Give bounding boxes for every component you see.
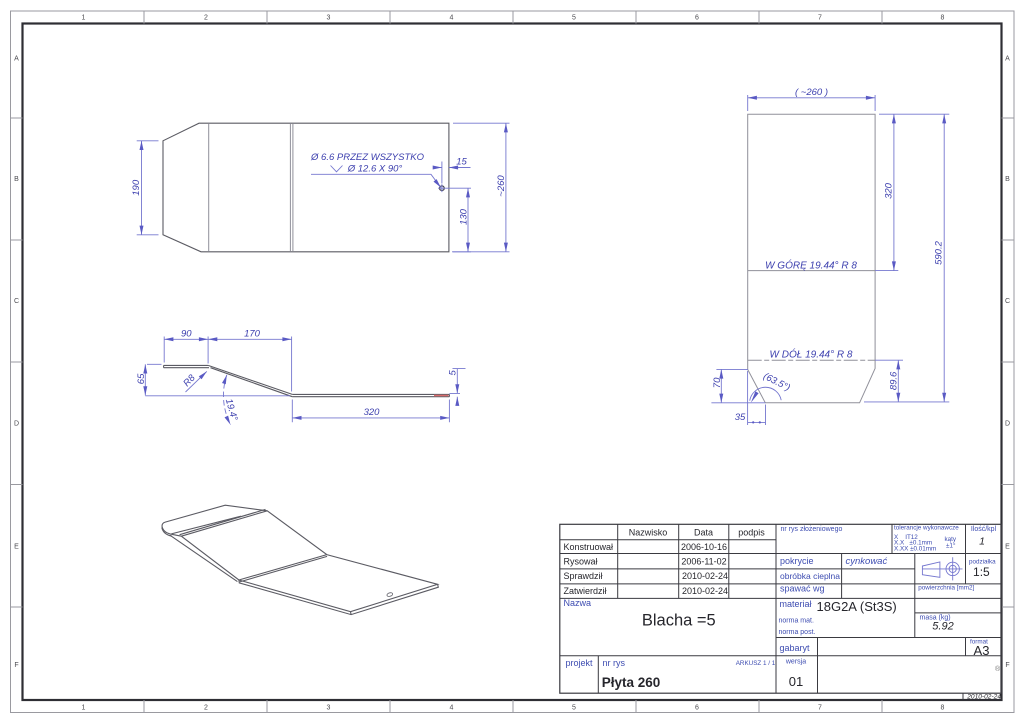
svg-text:nr rys: nr rys bbox=[603, 658, 626, 668]
svg-text:tolerancje wykonawcze: tolerancje wykonawcze bbox=[894, 524, 959, 531]
svg-text:C: C bbox=[1005, 298, 1010, 305]
svg-text:C: C bbox=[14, 298, 19, 305]
svg-text:1: 1 bbox=[82, 705, 86, 712]
svg-text:Blacha =5: Blacha =5 bbox=[642, 612, 716, 630]
svg-text:2: 2 bbox=[204, 15, 208, 22]
svg-text:90: 90 bbox=[181, 329, 192, 340]
svg-text:3: 3 bbox=[327, 15, 331, 22]
svg-text:Ilość/kpl: Ilość/kpl bbox=[971, 526, 997, 533]
svg-text:7: 7 bbox=[818, 705, 822, 712]
svg-text:Płyta 260: Płyta 260 bbox=[602, 675, 661, 690]
svg-text:1:5: 1:5 bbox=[973, 565, 990, 579]
svg-text:2006-11-02: 2006-11-02 bbox=[681, 557, 726, 567]
svg-text:15: 15 bbox=[456, 157, 467, 168]
svg-text:( ~260 ): ( ~260 ) bbox=[795, 87, 828, 98]
svg-text:B: B bbox=[14, 176, 19, 183]
svg-text:powierzchnia [mm2]: powierzchnia [mm2] bbox=[918, 584, 974, 591]
svg-text:spawać wg: spawać wg bbox=[780, 583, 825, 593]
svg-text:Konstruował: Konstruował bbox=[564, 542, 614, 552]
svg-text:wersja: wersja bbox=[785, 659, 806, 666]
svg-text:190: 190 bbox=[131, 179, 142, 196]
svg-text:Zatwierdził: Zatwierdził bbox=[564, 586, 607, 596]
svg-text:Nazwa: Nazwa bbox=[564, 598, 592, 608]
svg-text:A: A bbox=[14, 56, 19, 63]
svg-text:8: 8 bbox=[941, 15, 945, 22]
svg-text:A: A bbox=[1005, 56, 1010, 63]
svg-text:89.6: 89.6 bbox=[889, 371, 900, 390]
svg-text:320: 320 bbox=[364, 407, 381, 418]
svg-text:3: 3 bbox=[327, 705, 331, 712]
svg-text:Nazwisko: Nazwisko bbox=[629, 527, 668, 537]
svg-text:590.2: 590.2 bbox=[933, 240, 944, 264]
svg-text:5: 5 bbox=[572, 705, 576, 712]
svg-text:1: 1 bbox=[82, 15, 86, 22]
svg-text:E: E bbox=[1005, 544, 1010, 551]
svg-text:nr rys złożeniowego: nr rys złożeniowego bbox=[781, 526, 843, 533]
svg-text:®: ® bbox=[995, 665, 1001, 673]
svg-text:320: 320 bbox=[884, 182, 895, 199]
svg-text:W DÓŁ 19.44° R 8: W DÓŁ 19.44° R 8 bbox=[770, 348, 853, 361]
svg-text:Data: Data bbox=[694, 527, 713, 537]
svg-text:~260: ~260 bbox=[496, 175, 507, 197]
svg-text:ARKUSZ 1 / 1: ARKUSZ 1 / 1 bbox=[736, 660, 776, 667]
svg-text:Sprawdził: Sprawdził bbox=[564, 571, 603, 581]
svg-text:norma mat.: norma mat. bbox=[779, 617, 814, 624]
svg-text:5: 5 bbox=[572, 15, 576, 22]
svg-text:4: 4 bbox=[450, 15, 454, 22]
svg-text:7: 7 bbox=[818, 15, 822, 22]
svg-text:6: 6 bbox=[695, 15, 699, 22]
svg-text:18G2A (St3S): 18G2A (St3S) bbox=[817, 599, 897, 614]
svg-text:F: F bbox=[14, 662, 18, 669]
svg-text:2010-02-24: 2010-02-24 bbox=[682, 586, 728, 596]
svg-text:2010-02-24: 2010-02-24 bbox=[966, 694, 1001, 701]
svg-text:4: 4 bbox=[450, 705, 454, 712]
svg-text:Ø 12.6 X 90°: Ø 12.6 X 90° bbox=[347, 164, 403, 175]
svg-text:cynkować: cynkować bbox=[846, 556, 888, 567]
svg-text:D: D bbox=[1005, 421, 1010, 428]
svg-text:170: 170 bbox=[244, 329, 261, 340]
svg-text:5.92: 5.92 bbox=[932, 621, 953, 633]
svg-text:E: E bbox=[14, 544, 19, 551]
svg-text:01: 01 bbox=[789, 674, 803, 689]
svg-text:B: B bbox=[1005, 176, 1010, 183]
svg-text:F: F bbox=[1005, 662, 1009, 669]
svg-text:materiał: materiał bbox=[780, 599, 812, 609]
svg-text:130: 130 bbox=[459, 208, 470, 225]
svg-text:podpis: podpis bbox=[738, 527, 765, 537]
svg-text:2010-02-24: 2010-02-24 bbox=[682, 571, 728, 581]
svg-text:6: 6 bbox=[695, 705, 699, 712]
svg-text:70: 70 bbox=[712, 377, 723, 388]
svg-text:gabaryt: gabaryt bbox=[780, 643, 811, 653]
svg-text:Rysował: Rysował bbox=[564, 557, 598, 567]
svg-text:35: 35 bbox=[735, 412, 746, 423]
svg-text:2: 2 bbox=[204, 705, 208, 712]
svg-text:±1°: ±1° bbox=[946, 541, 956, 549]
svg-text:W GÓRĘ 19.44° R 8: W GÓRĘ 19.44° R 8 bbox=[765, 258, 857, 271]
svg-text:5: 5 bbox=[448, 369, 459, 375]
svg-text:obróbka cieplna: obróbka cieplna bbox=[780, 571, 840, 581]
svg-text:2006-10-16: 2006-10-16 bbox=[681, 542, 727, 552]
svg-text:projekt: projekt bbox=[566, 658, 594, 668]
svg-text:65: 65 bbox=[136, 373, 147, 384]
svg-text:D: D bbox=[14, 421, 19, 428]
svg-text:8: 8 bbox=[941, 705, 945, 712]
svg-text:A3: A3 bbox=[974, 643, 990, 658]
svg-text:Ø 6.6 PRZEZ WSZYSTKO: Ø 6.6 PRZEZ WSZYSTKO bbox=[310, 152, 425, 163]
svg-text:pokrycie: pokrycie bbox=[780, 556, 814, 566]
svg-text:X.XX ±0.01mm: X.XX ±0.01mm bbox=[894, 545, 936, 552]
svg-text:1: 1 bbox=[979, 535, 985, 547]
svg-text:norma post.: norma post. bbox=[779, 629, 816, 636]
